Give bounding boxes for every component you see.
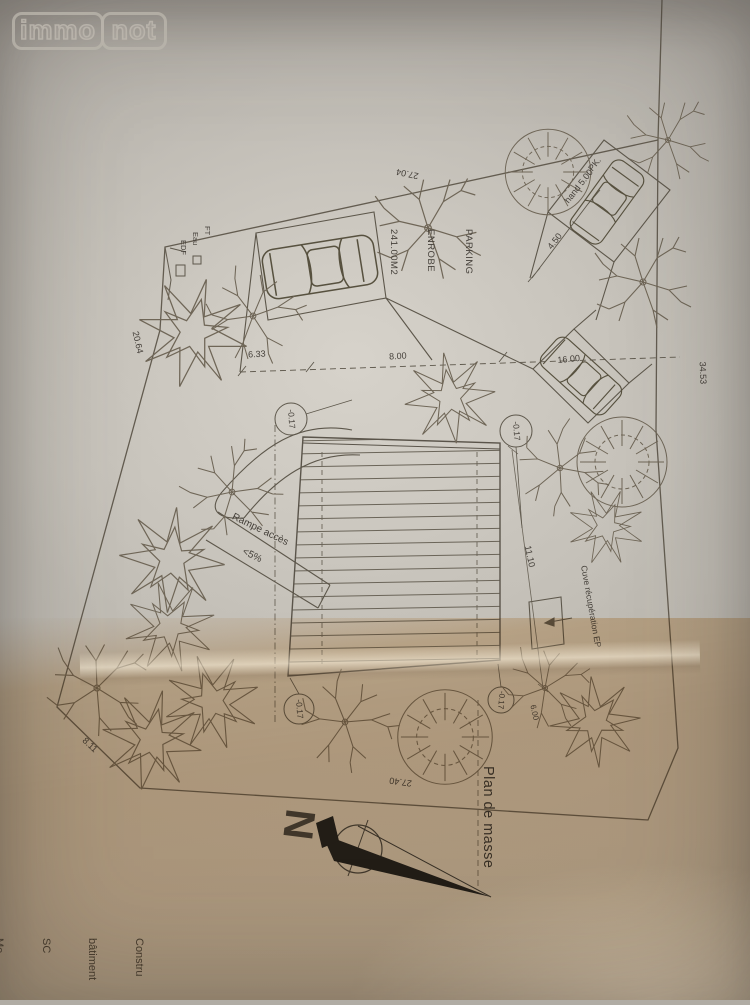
watermark-immo-box: immo [12, 12, 104, 50]
immonot-watermark: immo not [12, 12, 167, 50]
watermark-immo-text: immo [20, 15, 96, 46]
watermark-not-text: not [112, 15, 157, 46]
photo-vignette [0, 0, 750, 1000]
watermark-not-box: not [101, 12, 167, 50]
